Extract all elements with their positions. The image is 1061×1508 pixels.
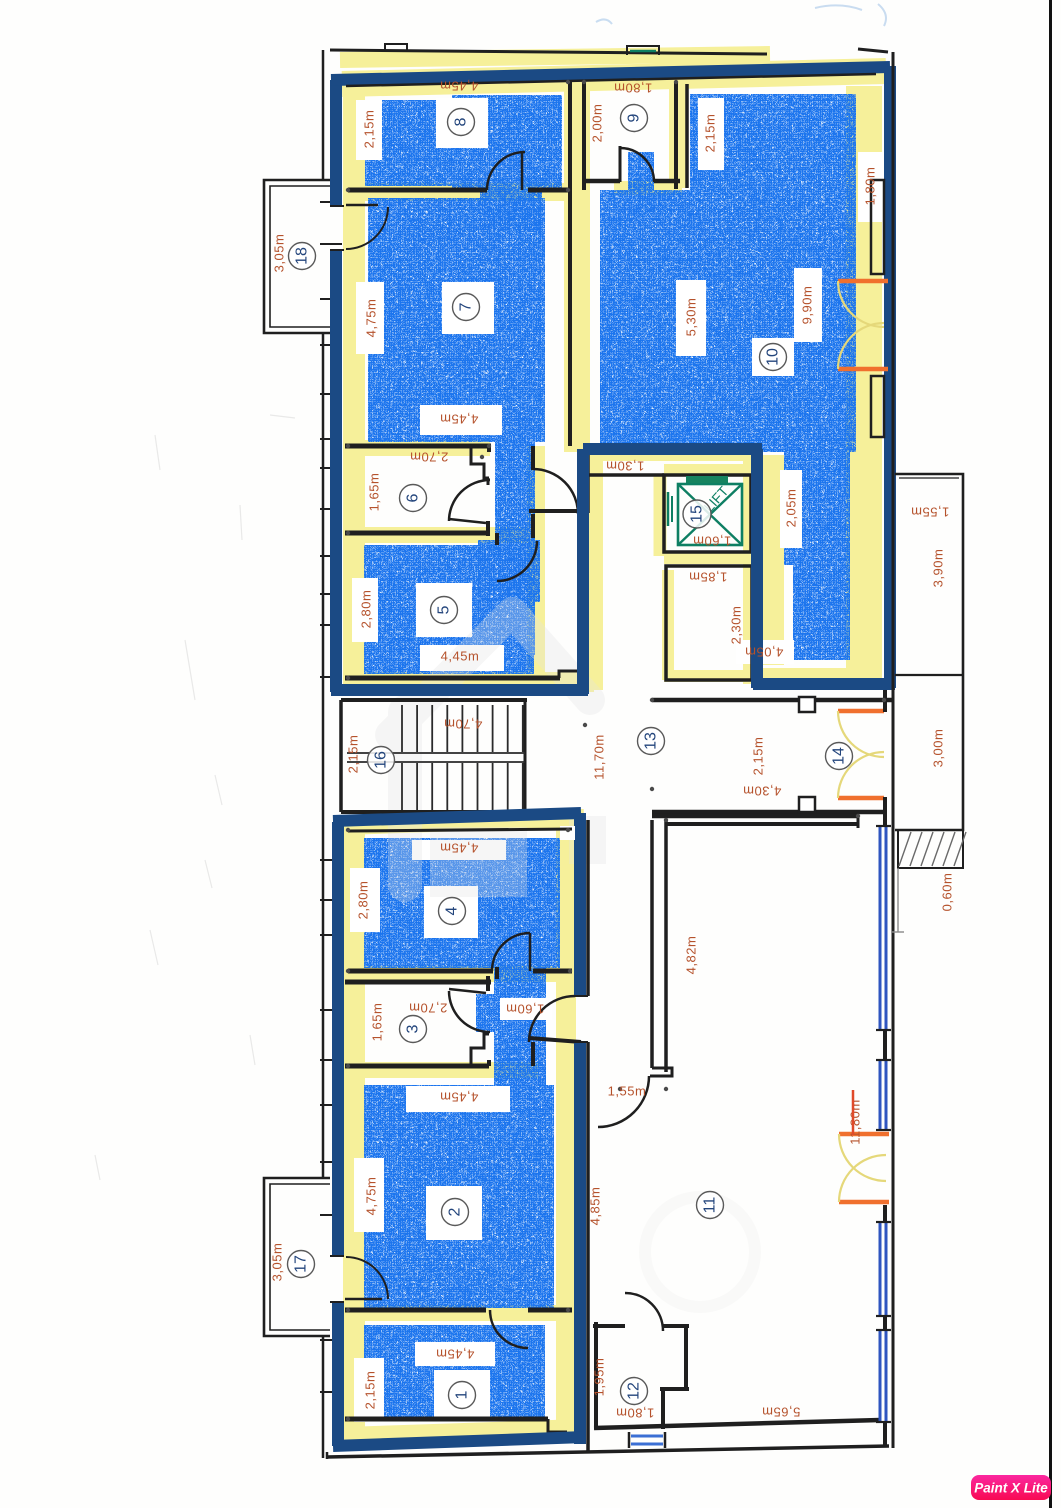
svg-text:13: 13 [643,732,660,750]
svg-text:3,05m: 3,05m [272,234,287,273]
svg-text:10: 10 [765,348,782,366]
svg-text:4,05m: 4,05m [745,645,784,660]
svg-text:2: 2 [447,1207,464,1216]
svg-text:3,00m: 3,00m [931,729,946,768]
svg-text:2,05m: 2,05m [784,489,799,528]
svg-text:11,70m: 11,70m [592,734,607,779]
svg-text:2,30m: 2,30m [729,606,744,645]
svg-text:1,55m: 1,55m [608,1084,647,1099]
svg-text:9,90m: 9,90m [800,286,815,325]
svg-text:11,80m: 11,80m [848,1099,863,1144]
svg-text:6: 6 [405,493,422,502]
svg-text:4,45m: 4,45m [440,412,479,427]
svg-text:4,82m: 4,82m [684,936,699,975]
svg-text:2,15m: 2,15m [703,114,718,153]
svg-text:2,80m: 2,80m [359,590,374,629]
svg-text:1,55m: 1,55m [911,505,950,520]
svg-text:1,65m: 1,65m [370,1003,385,1042]
svg-text:4,45m: 4,45m [440,841,479,856]
svg-text:1,85m: 1,85m [689,570,728,585]
svg-text:7: 7 [458,302,475,311]
svg-text:4,45m: 4,45m [440,1090,479,1105]
svg-text:9: 9 [626,113,643,122]
svg-text:1,95m: 1,95m [592,1358,607,1397]
svg-text:2,00m: 2,00m [590,104,605,143]
svg-text:1,60m: 1,60m [506,1002,545,1017]
svg-text:4: 4 [444,906,461,915]
svg-text:17: 17 [293,1255,310,1273]
svg-text:2,15m: 2,15m [346,735,361,774]
svg-text:11: 11 [702,1197,719,1214]
svg-text:2,70m: 2,70m [409,1001,448,1016]
svg-text:2,15m: 2,15m [362,110,377,149]
svg-text:16: 16 [373,751,390,769]
svg-text:4,75m: 4,75m [364,299,379,338]
svg-text:2,70m: 2,70m [410,450,449,465]
svg-text:3,05m: 3,05m [270,1243,285,1282]
svg-text:4,75m: 4,75m [364,1177,379,1216]
svg-text:1,80m: 1,80m [616,1406,655,1421]
svg-text:1,65m: 1,65m [367,473,382,512]
svg-text:2,15m: 2,15m [363,1371,378,1410]
svg-text:0,60m: 0,60m [940,873,955,912]
svg-text:5: 5 [436,605,453,614]
svg-text:2,80m: 2,80m [356,881,371,920]
svg-text:1,80m: 1,80m [614,81,653,96]
svg-text:1,60m: 1,60m [693,534,732,549]
svg-text:1: 1 [454,1390,471,1399]
svg-text:4,85m: 4,85m [588,1187,603,1226]
svg-text:8: 8 [453,117,470,126]
svg-text:4,45m: 4,45m [436,1347,475,1362]
svg-text:Paint X Lite: Paint X Lite [974,1481,1048,1496]
svg-text:4,30m: 4,30m [743,784,782,799]
svg-text:2,15m: 2,15m [751,737,766,776]
svg-text:12: 12 [626,1382,643,1400]
svg-text:5,30m: 5,30m [684,298,699,337]
svg-text:5,65m: 5,65m [762,1405,801,1420]
svg-text:3,90m: 3,90m [931,549,946,588]
svg-text:4,70m: 4,70m [444,717,483,732]
svg-text:1,80m: 1,80m [863,167,878,206]
svg-text:15: 15 [689,505,706,523]
svg-text:14: 14 [831,747,848,765]
svg-text:4,45m: 4,45m [441,649,480,664]
svg-text:3: 3 [405,1024,422,1033]
svg-text:4,45m: 4,45m [440,79,479,94]
svg-text:18: 18 [294,247,311,265]
svg-text:1,30m: 1,30m [606,459,645,474]
